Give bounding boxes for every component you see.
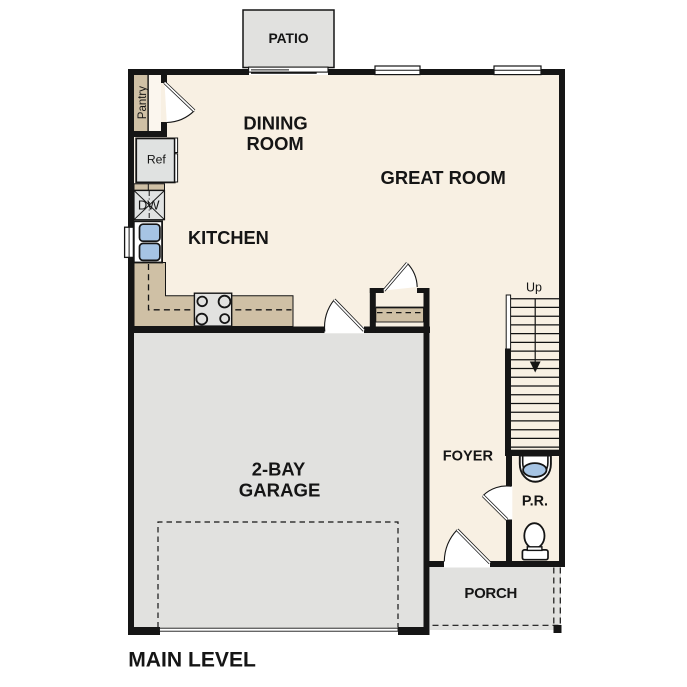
svg-text:Ref: Ref bbox=[147, 152, 167, 166]
svg-text:DINING: DINING bbox=[243, 113, 307, 134]
svg-text:Up: Up bbox=[526, 281, 542, 295]
svg-text:PATIO: PATIO bbox=[268, 31, 308, 46]
svg-text:GARAGE: GARAGE bbox=[239, 479, 321, 500]
svg-text:DW: DW bbox=[138, 198, 160, 213]
svg-text:FOYER: FOYER bbox=[443, 449, 494, 465]
svg-text:MAIN LEVEL: MAIN LEVEL bbox=[128, 649, 256, 672]
svg-text:KITCHEN: KITCHEN bbox=[188, 228, 269, 248]
svg-text:P.R.: P.R. bbox=[522, 493, 548, 509]
svg-text:ROOM: ROOM bbox=[246, 133, 303, 154]
svg-text:GREAT ROOM: GREAT ROOM bbox=[381, 167, 506, 188]
svg-text:Pantry: Pantry bbox=[137, 86, 149, 119]
svg-text:2-BAY: 2-BAY bbox=[252, 459, 306, 480]
svg-text:PORCH: PORCH bbox=[464, 585, 517, 602]
